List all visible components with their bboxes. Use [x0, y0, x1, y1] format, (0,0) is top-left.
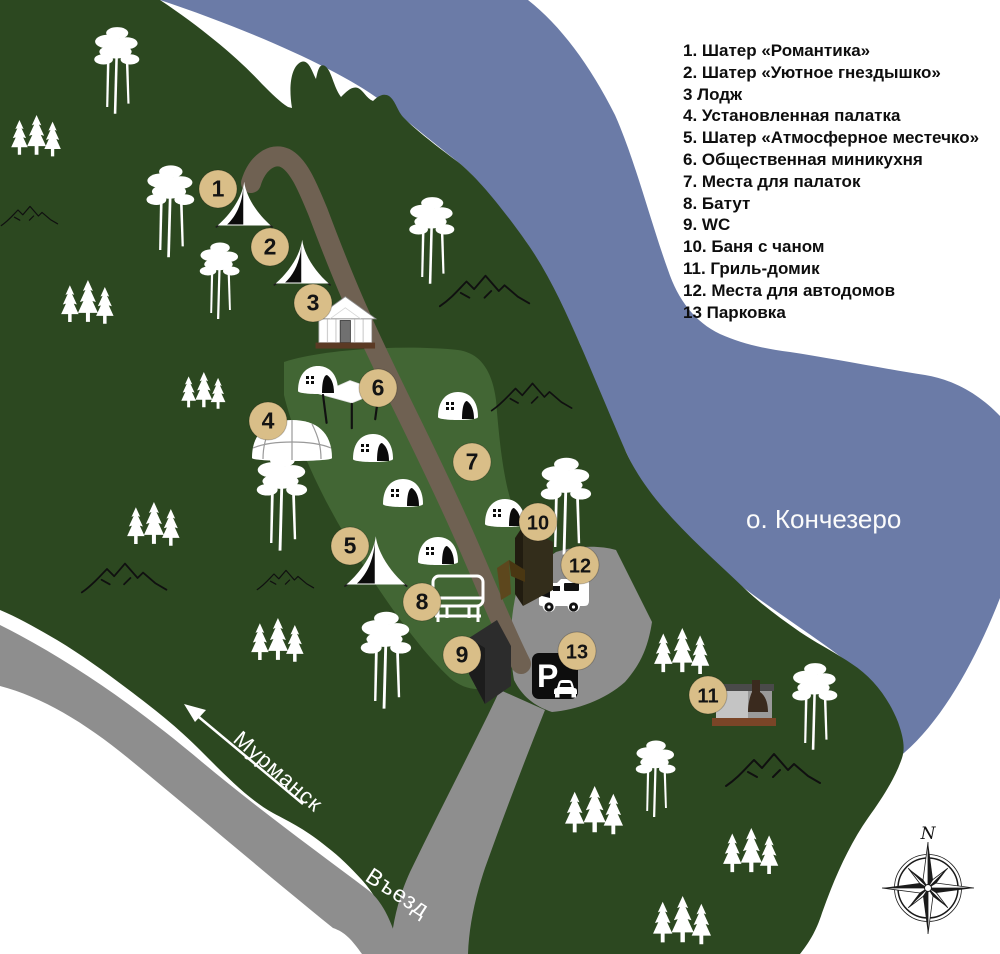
- legend-item-5: 5. Шатер «Атмосферное местечко»: [683, 127, 979, 149]
- map-marker-5[interactable]: 5: [331, 527, 369, 565]
- legend-item-9: 9. WC: [683, 214, 979, 236]
- legend: 1. Шатер «Романтика»2. Шатер «Уютное гне…: [683, 40, 979, 323]
- svg-text:2: 2: [264, 234, 277, 260]
- map-marker-10[interactable]: 10: [519, 503, 557, 541]
- lake-label: о. Кончезеро: [746, 504, 901, 534]
- map-marker-7[interactable]: 7: [453, 443, 491, 481]
- legend-item-11: 11. Гриль-домик: [683, 258, 979, 280]
- map-marker-9[interactable]: 9: [443, 636, 481, 674]
- legend-item-1: 1. Шатер «Романтика»: [683, 40, 979, 62]
- legend-item-6: 6. Общественная миникухня: [683, 149, 979, 171]
- svg-text:13: 13: [566, 642, 588, 664]
- compass-north-label: N: [920, 824, 937, 844]
- campsite-map-page: P о. Кончезеро Мурманск Въезд N: [0, 0, 1000, 954]
- map-marker-11[interactable]: 11: [689, 676, 727, 714]
- svg-text:9: 9: [456, 642, 469, 668]
- legend-item-10: 10. Баня с чаном: [683, 236, 979, 258]
- svg-text:11: 11: [697, 686, 718, 708]
- map-marker-6[interactable]: 6: [359, 369, 397, 407]
- svg-text:10: 10: [527, 513, 549, 535]
- svg-text:7: 7: [466, 449, 479, 475]
- map-marker-3[interactable]: 3: [294, 284, 332, 322]
- map-marker-12[interactable]: 12: [561, 546, 599, 584]
- svg-text:6: 6: [372, 375, 385, 401]
- legend-item-2: 2. Шатер «Уютное гнездышко»: [683, 62, 979, 84]
- legend-item-13: 13 Парковка: [683, 302, 979, 324]
- compass-rose-icon: N: [882, 824, 974, 934]
- svg-text:8: 8: [416, 589, 429, 615]
- svg-text:3: 3: [307, 290, 320, 316]
- svg-text:1: 1: [212, 176, 225, 202]
- svg-text:12: 12: [569, 556, 591, 578]
- legend-item-4: 4. Установленная палатка: [683, 105, 979, 127]
- svg-text:4: 4: [262, 408, 275, 434]
- legend-item-8: 8. Батут: [683, 193, 979, 215]
- legend-item-12: 12. Места для автодомов: [683, 280, 979, 302]
- map-marker-1[interactable]: 1: [199, 170, 237, 208]
- legend-item-7: 7. Места для палаток: [683, 171, 979, 193]
- map-marker-8[interactable]: 8: [403, 583, 441, 621]
- svg-text:5: 5: [344, 533, 357, 559]
- map-marker-2[interactable]: 2: [251, 228, 289, 266]
- legend-item-3: 3 Лодж: [683, 84, 979, 106]
- map-marker-13[interactable]: 13: [558, 632, 596, 670]
- map-marker-4[interactable]: 4: [249, 402, 287, 440]
